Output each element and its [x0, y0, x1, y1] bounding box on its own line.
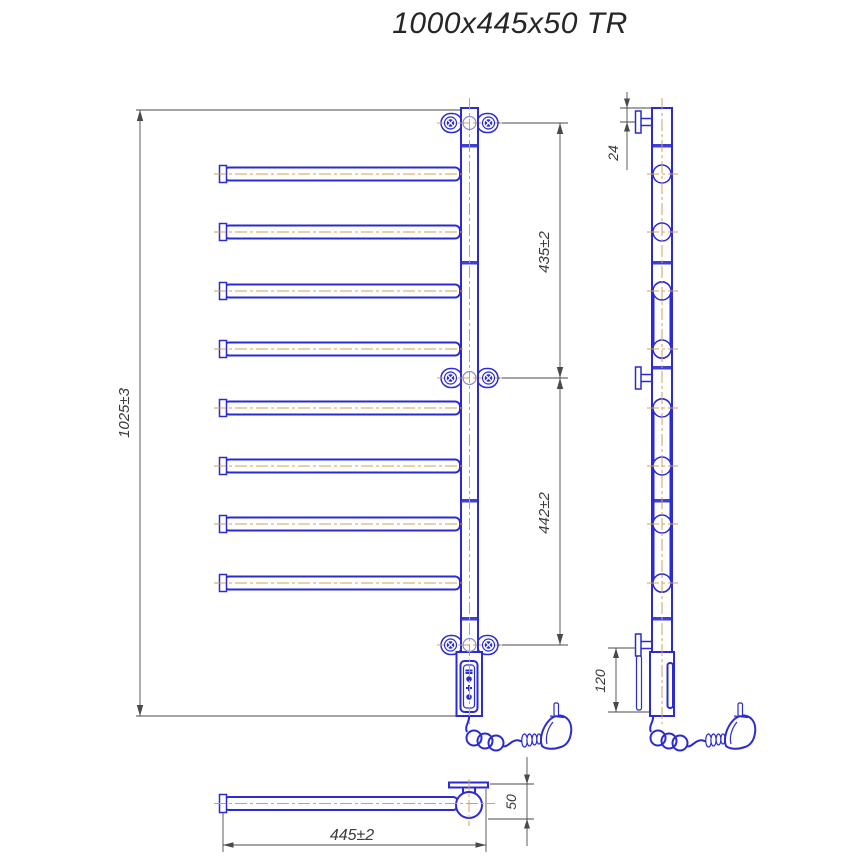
technical-drawing-page: 1000x445x50 TR 1025±3 435±2 442±2 24 120…: [0, 0, 868, 868]
dim-label-span-upper: 435±2: [536, 231, 553, 273]
wall-bracket-side: [636, 367, 653, 389]
dim-label-span-lower: 442±2: [536, 492, 553, 534]
dim-label-width-overall: 445±2: [330, 827, 374, 844]
screw-icon: [445, 117, 457, 129]
front-view: [214, 98, 571, 751]
technical-drawing: 1000x445x50 TR 1025±3 435±2 442±2 24 120…: [0, 0, 868, 868]
dim-label-height-overall: 1025±3: [116, 387, 133, 438]
towel-bar: [220, 400, 461, 417]
bottom-view: [214, 779, 495, 826]
towel-bar: [220, 166, 461, 183]
towel-bar: [220, 516, 461, 533]
drawing-title: 1000x445x50 TR: [392, 7, 628, 40]
dim-label-depth: 50: [503, 794, 519, 810]
towel-bars: [220, 166, 461, 592]
screw-icon: [483, 639, 495, 651]
controller-side: [668, 663, 674, 708]
wall-bracket-side: [636, 111, 653, 133]
towel-bar: [220, 575, 461, 592]
screw-icon: [445, 639, 457, 651]
dim-label-bottom-offset: 120: [592, 669, 608, 693]
bracket-stand: [637, 656, 642, 710]
screw-icon: [445, 372, 457, 384]
towel-bar: [220, 458, 461, 475]
screw-icon: [483, 117, 495, 129]
towel-bar: [220, 283, 461, 300]
towel-bar: [220, 341, 461, 358]
screw-icon: [483, 372, 495, 384]
towel-bar: [220, 224, 461, 241]
dim-label-top-offset: 24: [605, 145, 621, 162]
dim-bottom-offset: [608, 648, 649, 712]
side-view: [636, 98, 756, 751]
